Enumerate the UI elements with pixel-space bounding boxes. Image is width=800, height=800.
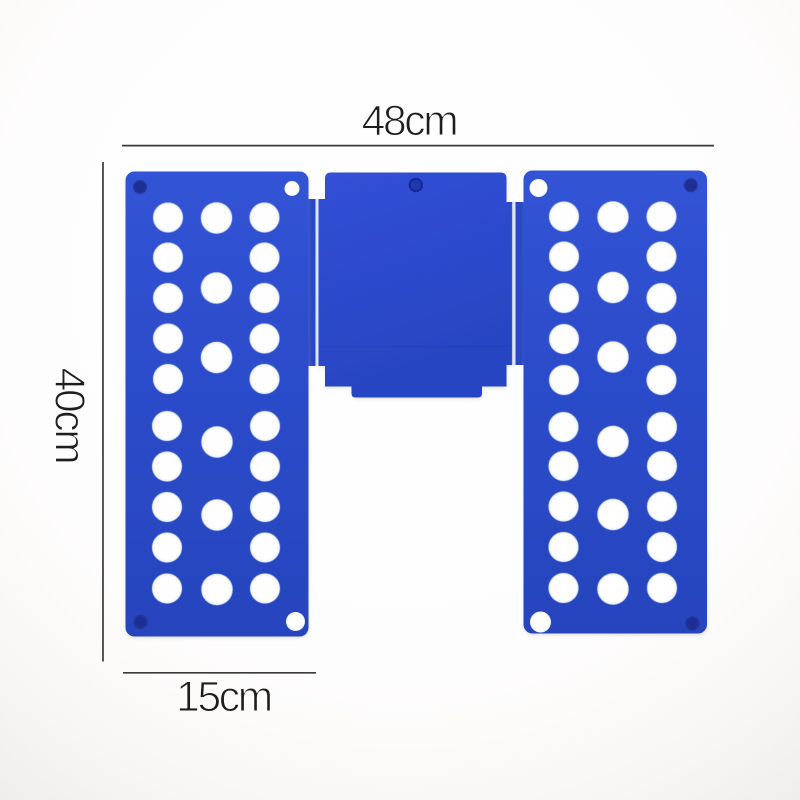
svg-text:48cm: 48cm [362, 98, 457, 145]
svg-text:15cm: 15cm [176, 674, 271, 721]
svg-text:40cm: 40cm [46, 368, 93, 463]
